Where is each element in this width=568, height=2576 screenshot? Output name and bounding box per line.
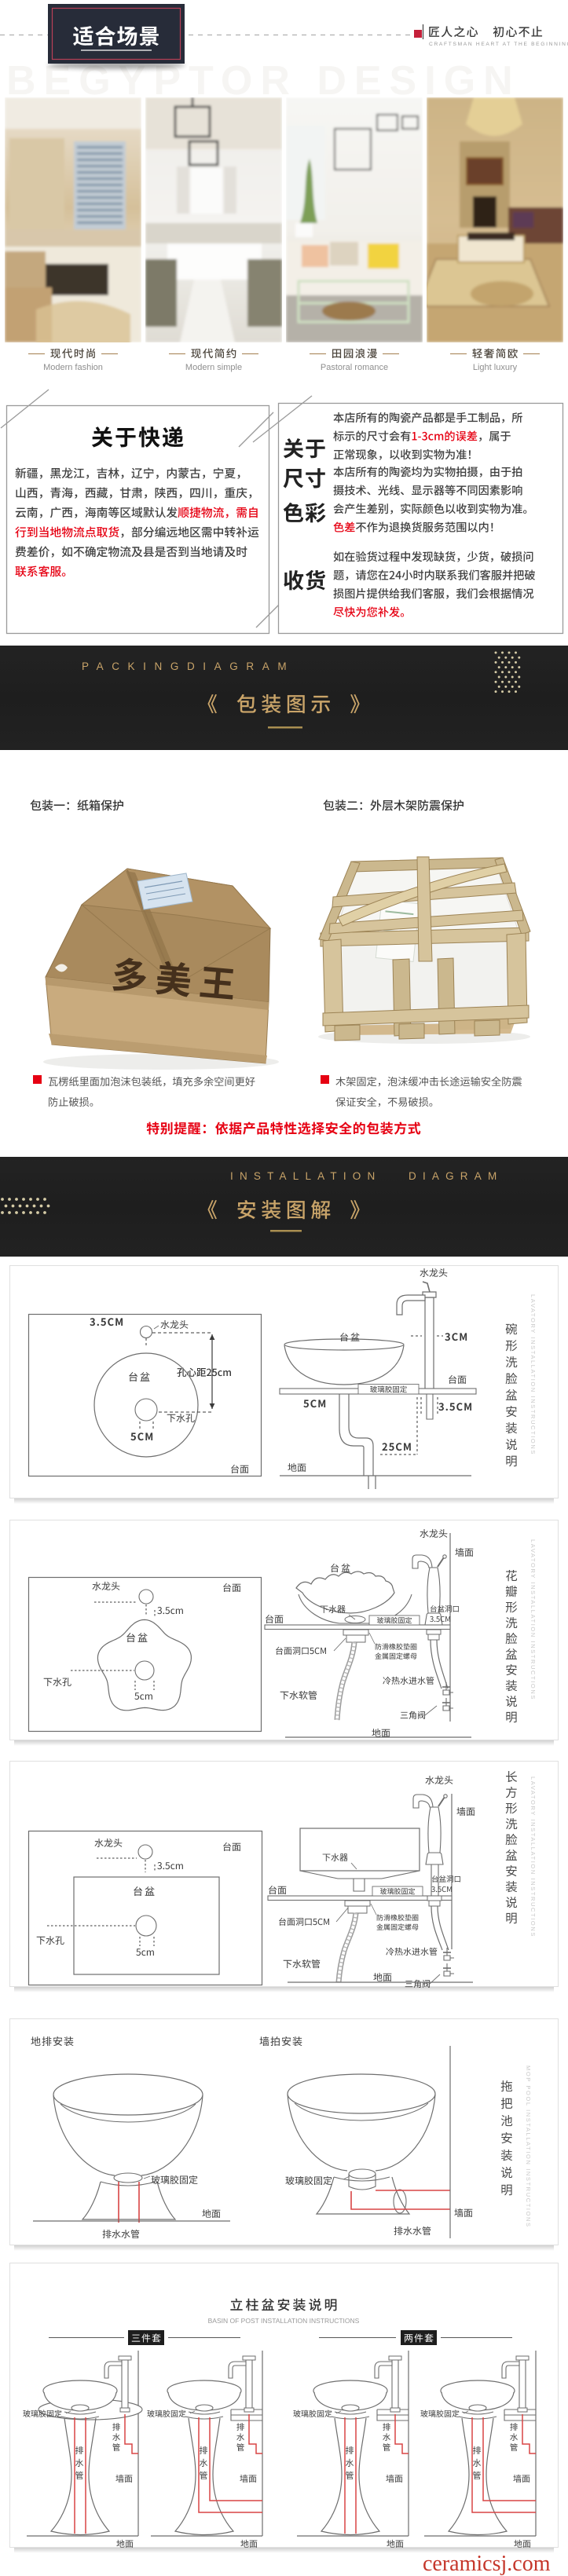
svg-text:ceramicsj.com: ceramicsj.com: [423, 2552, 551, 2576]
svg-text:MOP POOL INSTALLATION INSTRUCT: MOP POOL INSTALLATION INSTRUCTIONS: [525, 2066, 532, 2228]
svg-text:LAVATORY INSTALLATION INSTRUCT: LAVATORY INSTALLATION INSTRUCTIONS: [530, 1294, 537, 1455]
svg-text:LAVATORY INSTALLATION INSTRUCT: LAVATORY INSTALLATION INSTRUCTIONS: [530, 1776, 537, 1937]
svg-text:DIAGRAM: DIAGRAM: [409, 1170, 503, 1182]
svg-text:PACKINGDIAGRAM: PACKINGDIAGRAM: [82, 660, 295, 672]
svg-text:INSTALLATION: INSTALLATION: [230, 1170, 381, 1182]
svg-text:CRAFTSMAN HEART AT THE BEGINNI: CRAFTSMAN HEART AT THE BEGINNING: [429, 42, 568, 47]
svg-text:Light luxury: Light luxury: [473, 363, 518, 372]
svg-text:Pastoral romance: Pastoral romance: [321, 363, 388, 372]
svg-text:Modern simple: Modern simple: [185, 363, 242, 372]
svg-text:BASIN OF POST INSTALLATION INS: BASIN OF POST INSTALLATION INSTRUCTIONS: [208, 2317, 360, 2325]
svg-text:Modern fashion: Modern fashion: [43, 363, 103, 372]
svg-text:LAVATORY INSTALLATION INSTRUCT: LAVATORY INSTALLATION INSTRUCTIONS: [530, 1539, 537, 1700]
